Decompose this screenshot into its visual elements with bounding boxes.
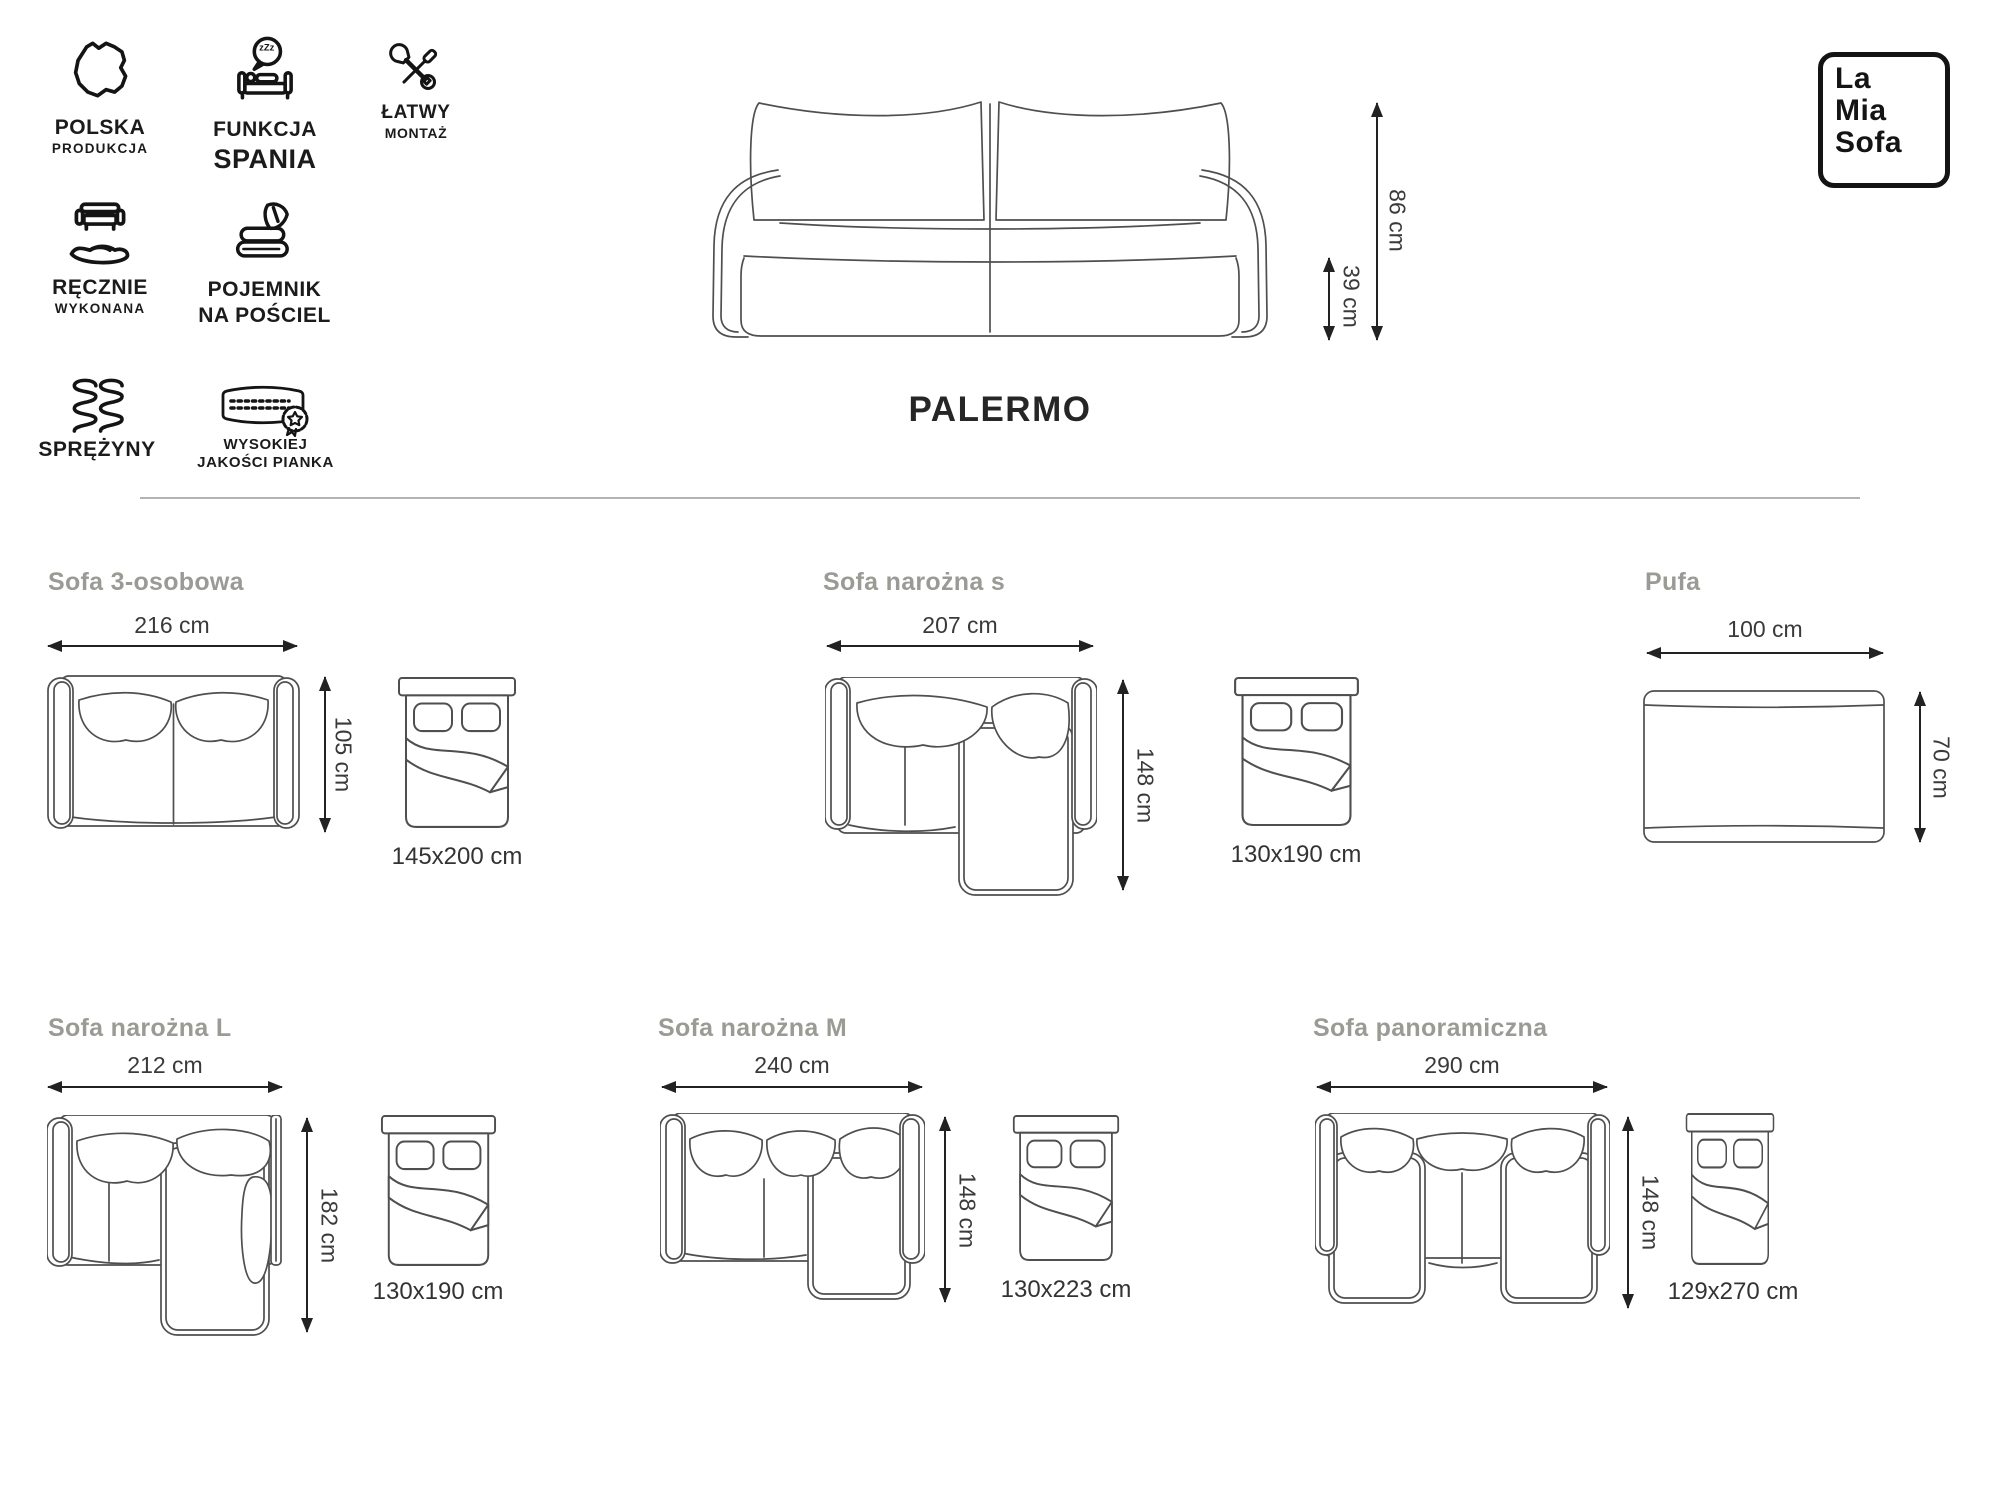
dim-arrow-total-height xyxy=(1376,103,1378,340)
dim-arrow-depth-v5 xyxy=(944,1117,946,1302)
dim-arrow-depth-v6 xyxy=(1627,1117,1629,1308)
sofa-narozna-s-topview-drawing xyxy=(825,677,1097,897)
sofa-3-osobowa-topview-drawing xyxy=(47,674,300,834)
variant-title-sofa-narozna-m: Sofa narożna M xyxy=(658,1014,847,1043)
dim-arrow-width-v1 xyxy=(48,645,297,647)
variant-title-pufa: Pufa xyxy=(1645,568,1700,597)
bed-icon-v2 xyxy=(1233,677,1360,828)
foam-icon xyxy=(215,381,315,437)
dim-arrow-width-v4 xyxy=(48,1086,282,1088)
variant-title-sofa-panoramiczna: Sofa panoramiczna xyxy=(1313,1014,1547,1043)
feature-sprezyny: SPRĘŻYNY xyxy=(17,438,177,462)
feature-funkcja-spania: FUNKCJA SPANIA xyxy=(185,118,345,177)
bedding-container-icon xyxy=(226,196,300,272)
sofa-front-view-drawing xyxy=(690,73,1290,345)
la-mia-sofa-logo: La Mia Sofa xyxy=(1818,52,1950,188)
dim-width-v2: 207 cm xyxy=(900,612,1020,639)
bed-size-v2: 130x190 cm xyxy=(1196,841,1396,869)
dim-depth-v5: 148 cm xyxy=(954,1161,981,1261)
sofa-narozna-m-topview-drawing xyxy=(660,1113,925,1303)
palermo-spec-sheet: POLSKA PRODUKCJA zZz FUNKCJA SPANIA ŁATW… xyxy=(0,0,2000,1500)
sleep-function-icon: zZz xyxy=(227,34,303,114)
poland-map-icon xyxy=(58,36,142,114)
pufa-topview-drawing xyxy=(1643,690,1885,843)
dim-depth-v1: 105 cm xyxy=(330,705,357,805)
dim-arrow-seat-height xyxy=(1328,258,1330,340)
dim-depth-v2: 148 cm xyxy=(1132,736,1159,836)
dim-total-height: 86 cm xyxy=(1384,171,1411,271)
sofa-narozna-l-topview-drawing xyxy=(47,1115,283,1337)
feature-polska-produkcja: POLSKA PRODUKCJA xyxy=(20,116,180,158)
bed-size-v6: 129x270 cm xyxy=(1633,1278,1833,1306)
feature-wysokiej-jakosci-pianka: WYSOKIEJ JAKOŚCI PIANKA xyxy=(168,436,363,473)
tools-icon xyxy=(384,38,448,102)
dim-arrow-width-v2 xyxy=(827,645,1093,647)
feature-recznie-wykonana: RĘCZNIE WYKONANA xyxy=(20,276,180,318)
dim-arrow-depth-v3 xyxy=(1919,692,1921,842)
dim-arrow-width-v3 xyxy=(1647,652,1883,654)
dim-width-v4: 212 cm xyxy=(105,1052,225,1079)
springs-icon xyxy=(58,375,136,437)
dim-width-v6: 290 cm xyxy=(1402,1052,1522,1079)
dim-arrow-depth-v1 xyxy=(324,677,326,832)
svg-text:zZz: zZz xyxy=(259,42,275,53)
dim-arrow-depth-v2 xyxy=(1122,680,1124,890)
feature-pojemnik-na-posciel: POJEMNIK NA POŚCIEL xyxy=(172,278,357,329)
bed-size-v4: 130x190 cm xyxy=(338,1278,538,1306)
bed-size-v5: 130x223 cm xyxy=(966,1276,1166,1304)
dim-width-v1: 216 cm xyxy=(112,612,232,639)
variant-title-sofa-3-osobowa: Sofa 3-osobowa xyxy=(48,568,244,597)
dim-seat-height: 39 cm xyxy=(1338,247,1365,347)
dim-depth-v6: 148 cm xyxy=(1637,1163,1664,1263)
dim-width-v5: 240 cm xyxy=(732,1052,852,1079)
feature-latwy-montaz: ŁATWY MONTAŻ xyxy=(352,102,480,142)
dim-arrow-depth-v4 xyxy=(306,1118,308,1332)
bed-size-v1: 145x200 cm xyxy=(357,843,557,871)
dim-depth-v3: 70 cm xyxy=(1928,718,1955,818)
dim-arrow-width-v5 xyxy=(662,1086,922,1088)
bed-icon-v4 xyxy=(380,1115,497,1268)
bed-icon-v6 xyxy=(1685,1113,1775,1267)
dim-arrow-width-v6 xyxy=(1317,1086,1607,1088)
variant-title-sofa-narozna-l: Sofa narożna L xyxy=(48,1014,231,1043)
bed-icon-v1 xyxy=(397,677,517,830)
dim-depth-v4: 182 cm xyxy=(316,1176,343,1276)
page-title: PALERMO xyxy=(840,390,1160,430)
sofa-panoramiczna-topview-drawing xyxy=(1315,1113,1610,1310)
handmade-icon xyxy=(60,198,140,270)
section-divider xyxy=(140,497,1860,499)
dim-width-v3: 100 cm xyxy=(1705,616,1825,643)
variant-title-sofa-narozna-s: Sofa narożna s xyxy=(823,568,1005,597)
bed-icon-v5 xyxy=(1012,1115,1120,1263)
